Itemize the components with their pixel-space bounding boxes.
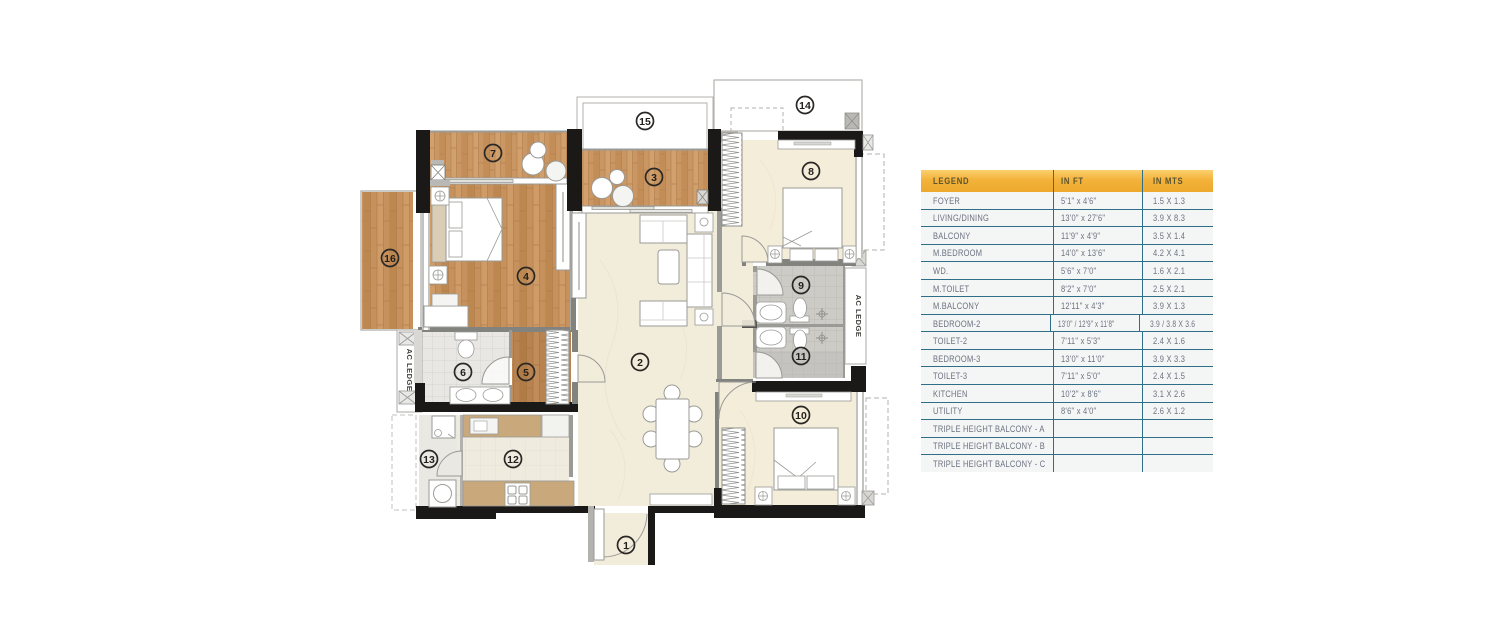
svg-text:2: 2 [637, 357, 643, 369]
svg-text:3: 3 [651, 172, 657, 184]
svg-text:14: 14 [799, 100, 811, 112]
svg-text:9: 9 [798, 280, 804, 292]
svg-text:8: 8 [808, 166, 814, 178]
svg-text:7: 7 [490, 148, 496, 160]
svg-text:AC LEDGE: AC LEDGE [405, 349, 414, 392]
svg-text:16: 16 [384, 253, 396, 265]
svg-text:5: 5 [523, 367, 529, 379]
svg-text:AC LEDGE: AC LEDGE [854, 295, 863, 338]
svg-text:1: 1 [623, 540, 629, 552]
svg-text:10: 10 [795, 410, 807, 422]
svg-text:13: 13 [423, 454, 435, 466]
svg-text:12: 12 [507, 454, 519, 466]
svg-text:11: 11 [795, 351, 806, 363]
svg-text:4: 4 [523, 271, 529, 283]
svg-text:15: 15 [639, 116, 651, 128]
svg-text:6: 6 [460, 367, 466, 379]
